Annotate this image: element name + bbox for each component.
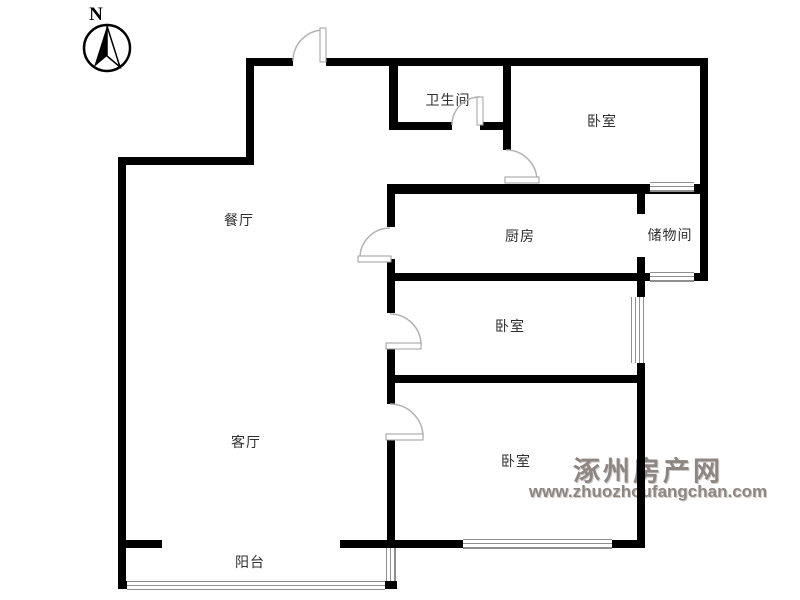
room-label-living: 客厅 bbox=[231, 432, 261, 452]
wall-bedroom-bot-right bbox=[637, 383, 645, 548]
wall-storage-divider-l bbox=[637, 257, 645, 273]
wall-bedroom-bot-left-l bbox=[387, 437, 395, 548]
wall-bathroom-left bbox=[389, 58, 398, 130]
bedroom-mid-door-arc bbox=[390, 314, 421, 345]
wall-balcony-cap-left bbox=[118, 581, 127, 589]
wall-bottom-middle bbox=[340, 540, 463, 548]
watermark-site-url: www.zhuozhoufangchan.com bbox=[529, 482, 767, 502]
wall-bedroom-bot-left-u bbox=[387, 383, 395, 404]
wall-step-horizontal bbox=[118, 157, 254, 165]
bedroom-top-door-arc bbox=[506, 150, 537, 181]
window-storage-top bbox=[650, 182, 694, 192]
window-balcony-front bbox=[127, 581, 385, 590]
room-label-bedroom-bottom: 卧室 bbox=[501, 451, 531, 471]
room-label-dining: 餐厅 bbox=[224, 210, 254, 230]
wall-balcony-cap-right bbox=[385, 581, 397, 589]
wall-living-bottom-left bbox=[118, 540, 162, 548]
room-label-balcony: 阳台 bbox=[235, 552, 265, 572]
wall-west bbox=[118, 157, 126, 589]
wall-bedroom-top-left bbox=[503, 58, 511, 150]
window-bedroom-bottom bbox=[463, 539, 612, 549]
wall-storage-divider-u bbox=[637, 194, 645, 214]
compass-needle-dark bbox=[94, 26, 107, 67]
window-storage-bottom bbox=[650, 272, 694, 282]
compass-circle bbox=[84, 25, 130, 71]
wall-step-vertical bbox=[246, 58, 254, 163]
room-label-storage: 储物间 bbox=[648, 225, 693, 245]
compass-needle-light bbox=[107, 26, 120, 67]
wall-bedroom-mid-right-l bbox=[637, 363, 645, 375]
bathroom-door-leaf bbox=[477, 97, 483, 125]
wall-bathroom-bottom-l bbox=[389, 122, 452, 130]
floor-plan: N 涿州房产网 www.zhuozhoufangchan.com bbox=[0, 0, 800, 600]
room-label-bedroom-middle: 卧室 bbox=[495, 316, 525, 336]
entry-door-leaf bbox=[320, 28, 326, 62]
window-balcony-right bbox=[386, 548, 396, 581]
wall-kitchen-left-lower bbox=[387, 259, 395, 313]
wall-east bbox=[700, 58, 708, 281]
window-bedroom-mid-east bbox=[631, 297, 644, 363]
bedroom-top-door-leaf bbox=[505, 177, 539, 183]
north-compass-icon: N bbox=[70, 0, 148, 80]
kitchen-door-arc bbox=[360, 228, 390, 258]
room-label-bedroom-top: 卧室 bbox=[587, 111, 617, 131]
compass-n-label: N bbox=[89, 4, 103, 25]
wall-bedroom-mid-bottom bbox=[387, 375, 645, 383]
wall-bedroom-mid-right-u bbox=[637, 281, 645, 297]
wall-bottom-right bbox=[612, 540, 645, 548]
room-label-bathroom: 卫生间 bbox=[426, 90, 471, 110]
wall-top-main bbox=[326, 58, 708, 66]
wall-kitchen-left-upper bbox=[387, 194, 395, 227]
entry-door-arc bbox=[293, 30, 324, 61]
room-label-kitchen: 厨房 bbox=[505, 226, 535, 246]
bedroom-bot-door-arc bbox=[390, 404, 423, 437]
